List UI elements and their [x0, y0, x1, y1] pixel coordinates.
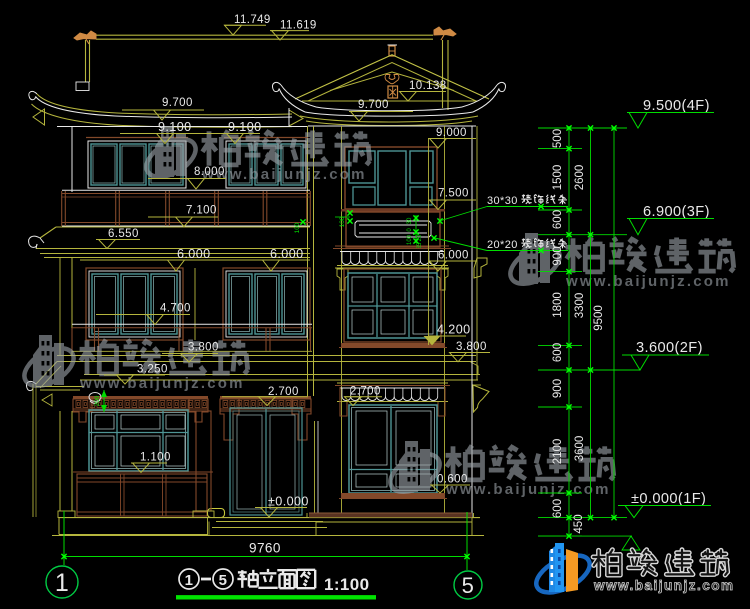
svg-text:100: 100: [339, 216, 346, 227]
svg-text:6.000: 6.000: [270, 247, 304, 261]
svg-text:7.500: 7.500: [438, 188, 469, 200]
svg-text:3.800: 3.800: [188, 342, 219, 354]
svg-text:6.550: 6.550: [108, 228, 139, 240]
svg-text:www.baijunjz.com: www.baijunjz.com: [201, 166, 367, 183]
svg-text:1: 1: [55, 569, 69, 597]
svg-text:20: 20: [417, 234, 423, 241]
svg-text:0.600: 0.600: [437, 474, 468, 486]
svg-text:2.700: 2.700: [268, 386, 299, 398]
svg-text:30: 30: [407, 217, 413, 224]
svg-text:www.baijunjz.com: www.baijunjz.com: [593, 578, 735, 593]
svg-text:900: 900: [552, 246, 564, 265]
svg-text:±0.000: ±0.000: [268, 495, 309, 509]
svg-text:4.700: 4.700: [160, 303, 191, 315]
svg-text:20*20: 20*20: [487, 239, 518, 251]
svg-text:5: 5: [462, 573, 475, 598]
svg-text:1500: 1500: [552, 165, 564, 191]
svg-text:2.700: 2.700: [350, 386, 381, 398]
svg-text:1.100: 1.100: [140, 452, 171, 464]
svg-text:10.138: 10.138: [409, 80, 447, 92]
svg-text:9.100: 9.100: [158, 120, 192, 134]
svg-text:100: 100: [294, 222, 301, 233]
svg-text:900: 900: [552, 379, 564, 398]
svg-text:www.baijunjz.com: www.baijunjz.com: [565, 273, 731, 290]
svg-text:www.baijunjz.com: www.baijunjz.com: [445, 481, 611, 498]
svg-text:100: 100: [407, 234, 413, 245]
svg-text:8.000: 8.000: [194, 166, 225, 178]
svg-text:9.100: 9.100: [228, 120, 262, 134]
svg-text:200: 200: [94, 395, 101, 406]
svg-text:1:100: 1:100: [324, 575, 369, 594]
svg-text:7.100: 7.100: [186, 205, 217, 217]
svg-text:9.700: 9.700: [162, 97, 193, 109]
svg-text:3.800: 3.800: [456, 341, 487, 353]
svg-text:11.619: 11.619: [280, 20, 317, 32]
svg-text:9.700: 9.700: [358, 99, 389, 111]
svg-text:600: 600: [552, 499, 564, 518]
svg-text:6.000: 6.000: [177, 247, 211, 261]
svg-text:3300: 3300: [574, 293, 586, 319]
svg-text:600: 600: [552, 343, 564, 362]
svg-text:500: 500: [552, 129, 564, 148]
svg-text:30*30: 30*30: [487, 195, 518, 207]
svg-text:600: 600: [552, 210, 564, 229]
svg-text:3.250: 3.250: [137, 364, 168, 376]
svg-text:www.baijunjz.com: www.baijunjz.com: [79, 375, 245, 392]
svg-text:2100: 2100: [552, 439, 564, 465]
svg-text:450: 450: [573, 514, 585, 533]
svg-text:9760: 9760: [249, 541, 281, 556]
svg-text:9.000: 9.000: [436, 127, 467, 139]
svg-text:1: 1: [185, 572, 194, 589]
svg-text:9.500(4F): 9.500(4F): [643, 98, 710, 114]
svg-text:6.900(3F): 6.900(3F): [643, 204, 710, 220]
svg-text:1800: 1800: [552, 292, 564, 318]
svg-text:6.000: 6.000: [438, 250, 469, 262]
svg-text:4.200: 4.200: [437, 323, 471, 337]
svg-text:11.749: 11.749: [234, 14, 271, 26]
svg-text:3.600(2F): 3.600(2F): [636, 340, 703, 356]
svg-text:5: 5: [219, 572, 228, 589]
svg-text:±0.000(1F): ±0.000(1F): [631, 491, 706, 507]
svg-text:3600: 3600: [574, 436, 586, 462]
svg-text:2600: 2600: [574, 165, 586, 191]
svg-text:9500: 9500: [593, 305, 605, 331]
